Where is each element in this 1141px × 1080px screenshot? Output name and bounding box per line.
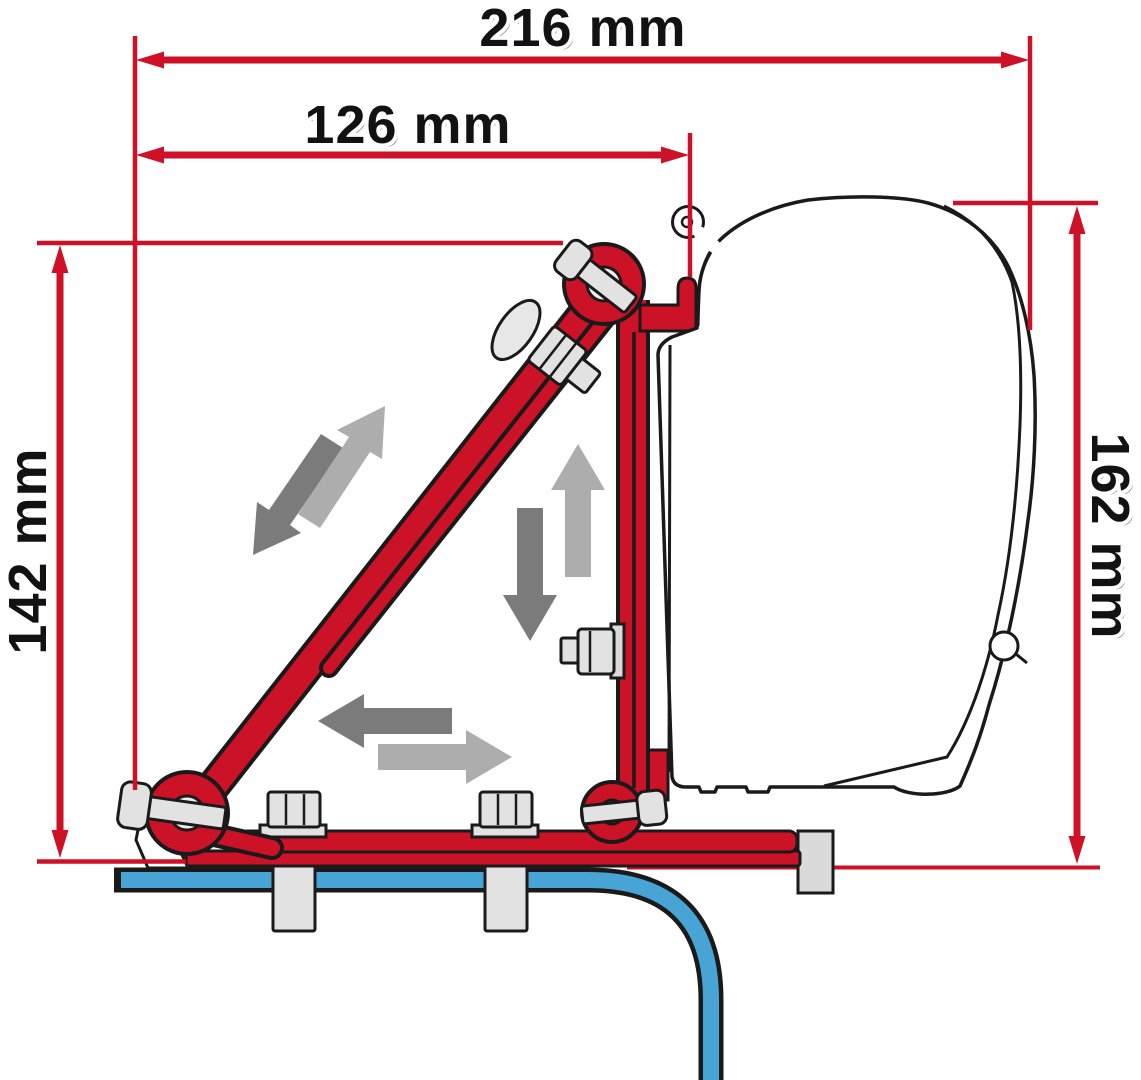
bracket-dimension-diagram: 216 mm 216 mm 126 mm 126 mm 142 mm 142 m…: [0, 0, 1141, 1080]
awning-case: [658, 197, 1035, 794]
adjustment-arrows: [253, 406, 605, 784]
diagram-canvas: 216 mm 216 mm 126 mm 126 mm 142 mm 142 m…: [0, 0, 1141, 1080]
label-142: 142 mm: [0, 447, 58, 654]
top-channel: [640, 278, 696, 331]
case-wall-line: [669, 345, 670, 772]
label-216: 216 mm: [479, 0, 686, 58]
roof-rail: [114, 880, 711, 1080]
label-126: 126 mm: [304, 95, 511, 155]
base-bolt-left: [260, 792, 326, 837]
left-hinge: [116, 772, 272, 868]
arrow-up-icon: [551, 444, 605, 577]
gutter-hook: [673, 207, 716, 248]
base-bolt-right: [472, 792, 538, 837]
arrow-down-icon: [503, 508, 557, 641]
arrow-right-icon: [378, 730, 512, 784]
rail-bolt: [561, 624, 624, 678]
spacer-block: [798, 831, 833, 893]
arrow-left-icon: [318, 694, 452, 748]
case-hole: [990, 632, 1018, 660]
label-162: 162 mm: [1080, 432, 1140, 639]
